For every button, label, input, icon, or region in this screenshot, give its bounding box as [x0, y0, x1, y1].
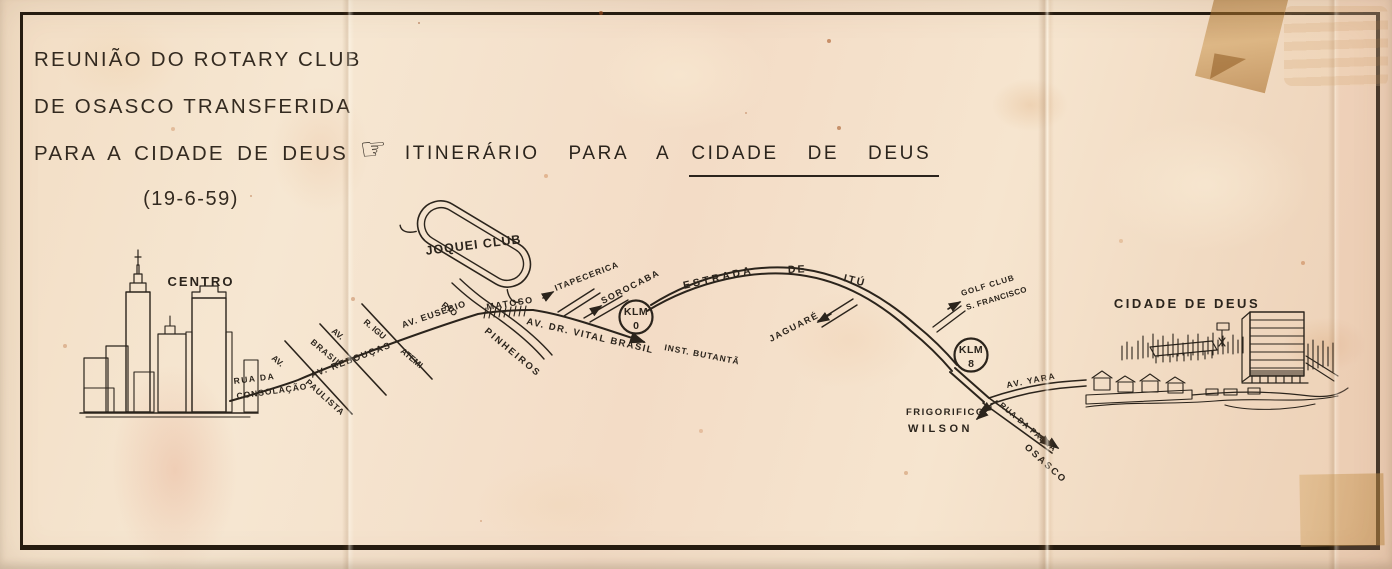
railway-strip [1086, 390, 1192, 404]
track-end-hook [399, 223, 417, 237]
tower-pilotis [1242, 376, 1308, 383]
car [1248, 388, 1260, 394]
label-inst-butanta: INST. BUTANTÃ [664, 342, 741, 366]
tower-floor-lines [1250, 320, 1304, 368]
label-pinheiros: PINHEIROS [482, 326, 543, 380]
ground-loop [1225, 404, 1315, 409]
house-roof [1116, 376, 1135, 382]
tower-antenna [135, 250, 141, 265]
building [158, 334, 186, 412]
building-spire-tower [126, 292, 150, 412]
label-av-brasil-prefix: AV. [330, 326, 346, 342]
scanned-map-page: REUNIÃO DO ROTARY CLUB DE OSASCO TRANSFE… [0, 0, 1392, 569]
tower-base-shadow [1250, 370, 1304, 376]
cidade-de-deus-illustration [1086, 312, 1348, 409]
label-rua-da: RUA DA [233, 371, 276, 386]
klm8-number: 8 [968, 358, 974, 370]
label-sorocaba: SOROCABA [599, 268, 661, 306]
itapecerica-arrow [543, 292, 553, 298]
label-joquei-club: JOQUEI CLUB [425, 232, 522, 258]
building [134, 372, 154, 412]
label-cidade-de-deus: CIDADE DE DEUS [1114, 296, 1260, 311]
tape-residue-bottom-right [1299, 473, 1384, 546]
label-estrada: ESTRADA [682, 264, 755, 292]
building [84, 358, 108, 412]
building-deco-tower [192, 298, 226, 412]
label-itu: ITÚ [842, 271, 867, 289]
road-klm8-to-fork [950, 368, 989, 402]
tower-wing [186, 332, 192, 412]
label-atemi: ATEMI [399, 346, 425, 370]
label-frigorifico: FRIGORIFICO [906, 407, 985, 418]
label-wilson: WILSON [908, 423, 973, 435]
klm0-number: 0 [633, 320, 639, 332]
label-itapecerica: ITAPECERICA [553, 259, 620, 293]
rooftop-tank [165, 326, 175, 334]
label-r-igu: R. IGU [362, 317, 388, 341]
label-de: DE [788, 263, 807, 276]
branch-golf-club [933, 306, 965, 332]
water-tower-tank [1217, 323, 1229, 330]
road-rua-da-palha-2 [983, 403, 1052, 453]
branch-jaguare [818, 299, 857, 327]
tape-smudge-top-right [1284, 6, 1388, 86]
label-paulista: PAULISTA [304, 377, 347, 417]
slab-columns [1156, 351, 1212, 363]
house-roof [1092, 371, 1112, 378]
building [244, 360, 258, 412]
label-centro: CENTRO [168, 274, 235, 289]
klm8-label: KLM [959, 344, 983, 356]
water-tower-legs [1219, 330, 1225, 346]
house [1142, 381, 1158, 392]
tape-residue-corner [1210, 53, 1246, 84]
building [106, 346, 128, 412]
house [1094, 378, 1110, 390]
klm0-label: KLM [624, 306, 648, 318]
house [1118, 382, 1133, 392]
tower-crown [130, 265, 146, 292]
house-roof [1140, 374, 1160, 381]
house-roof [1166, 377, 1185, 383]
ground-contour [1086, 396, 1338, 407]
label-jaguare: JAGUARÉ [767, 310, 820, 344]
label-av-paulista-prefix: AV. [270, 353, 286, 369]
building [84, 388, 114, 412]
itinerary-map-drawing: CENTRO JOQUEI CLUB [0, 0, 1392, 569]
